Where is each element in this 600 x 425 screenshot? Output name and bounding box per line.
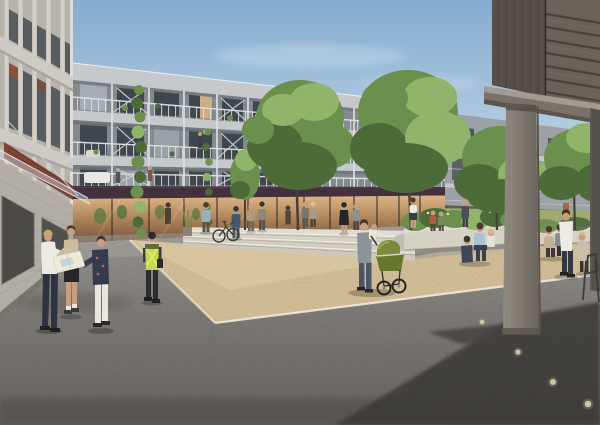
person-silhouette-in-shop: [285, 206, 291, 225]
concrete-pillar: [503, 103, 539, 334]
cloud: [215, 44, 405, 68]
person-silhouette-in-shop: [165, 202, 171, 224]
bag: [157, 259, 163, 268]
architectural-rendering: Architectural rendering — residential co…: [0, 0, 600, 425]
courtyard-scene: Architectural rendering — residential co…: [0, 0, 600, 425]
